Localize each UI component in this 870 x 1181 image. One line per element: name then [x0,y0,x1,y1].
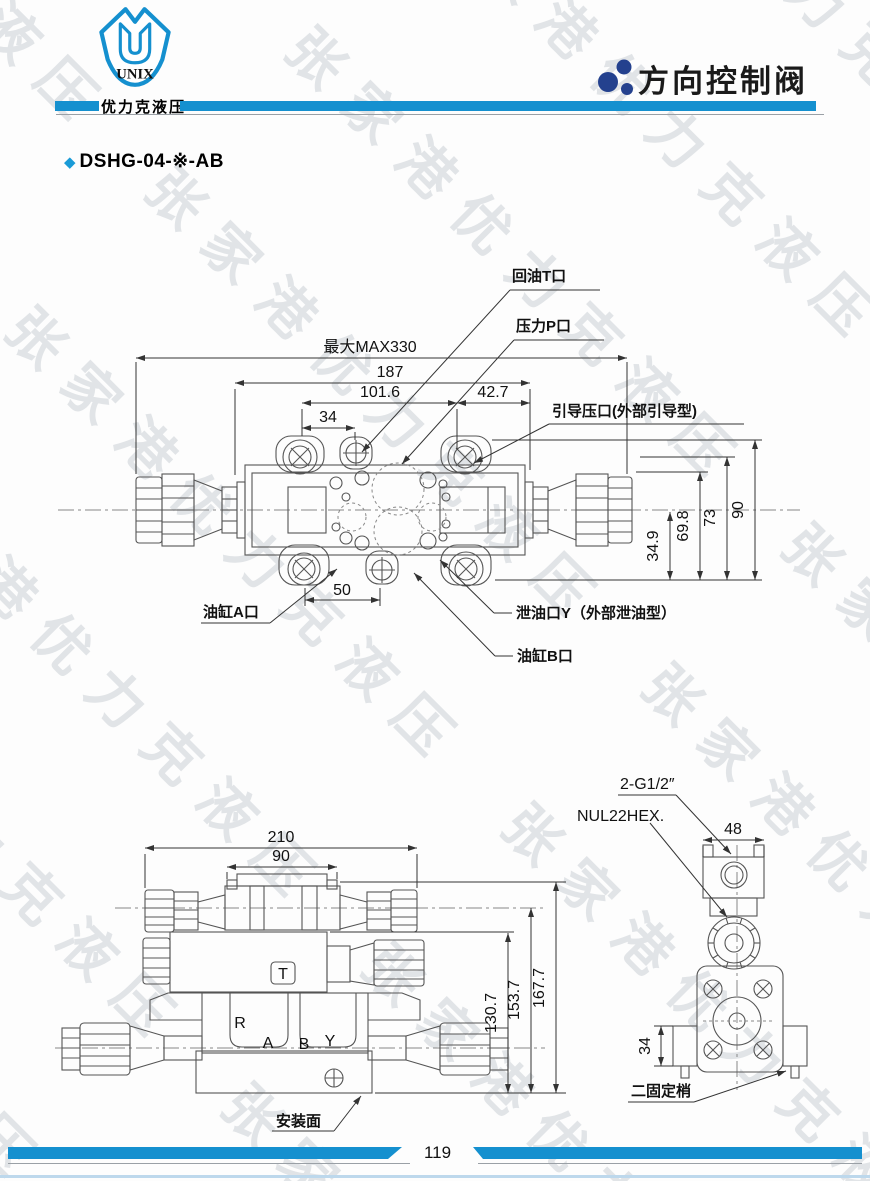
port-letter-b: B [299,1036,310,1053]
side-and-end-view-drawing: 210 90 130.7 153.7 167.7 T R A B Y 安装面 [0,760,870,1140]
end-view-body [673,845,807,1078]
dim-50: 50 [333,582,351,599]
dim-187: 187 [377,364,404,381]
dim-max330: 最大MAX330 [323,338,416,356]
label-hex-nut: NUL22HEX. [577,808,664,825]
dim-69-8: 69.8 [675,510,692,541]
model-code: DSHG-04-※-AB [80,150,224,173]
footer-bar-right [473,1147,862,1159]
page-category-title: 方向控制阀 [638,56,808,101]
hidden-detail-circles [338,463,446,555]
model-title: ◆ DSHG-04-※-AB [64,150,224,173]
label-thread-size: 2-G1/2″ [620,776,675,793]
leader-lines-end [618,795,786,1102]
dim-210: 210 [268,829,295,846]
catalog-page: 张家港优力克液压 张家港优力克液压 张家港优力克液压 张家港优力克液压 张家港优… [0,0,870,1181]
page-bottom-edge [0,1175,870,1178]
top-view-drawing: 最大MAX330 187 101.6 42.7 34 50 34.9 69.8 … [0,240,870,680]
port-letter-r: R [234,1015,246,1032]
port-letter-a: A [263,1035,274,1052]
brand-dots-icon [596,54,636,98]
dim-167-7: 167.7 [531,968,548,1008]
logo-text: UNIX [116,67,154,83]
label-drain-port-y: 泄油口Y（外部泄油型） [516,604,676,622]
right-solenoid [525,474,632,546]
footer-bar-left [8,1147,402,1159]
pilot-stage-body [143,932,424,992]
label-return-port-t: 回油T口 [512,267,566,285]
main-valve-side [62,993,508,1093]
label-cylinder-port-b: 油缸B口 [517,647,573,665]
dim-90-side: 90 [272,848,290,865]
label-cylinder-port-a: 油缸A口 [203,603,259,621]
port-letter-t: T [278,966,288,983]
dim-130-7: 130.7 [483,993,500,1033]
page-number: 119 [402,1143,473,1163]
dim-42-7: 42.7 [477,384,508,401]
dim-101-6: 101.6 [360,384,400,401]
dim-34-end: 34 [637,1037,654,1055]
label-pilot-port: 引导压口(外部引导型) [552,402,697,420]
footer-hairline-right [478,1163,862,1164]
brand-bar-right [180,101,816,111]
dim-34: 34 [319,409,337,426]
dim-90: 90 [730,501,747,519]
dim-73: 73 [702,509,719,527]
dimension-lines-side [145,848,566,1093]
pilot-valve-side [145,874,417,932]
port-letter-y: Y [325,1033,336,1050]
label-pressure-port-p: 压力P口 [516,317,571,335]
brand-bar-left [55,101,99,111]
footer-hairline-left [8,1163,410,1164]
label-fixing-pins: 二固定梢 [631,1082,691,1100]
header-hairline [56,114,824,115]
left-solenoid [136,474,245,546]
label-mounting-surface: 安装面 [276,1112,321,1130]
dim-48: 48 [724,821,742,838]
diamond-bullet-icon: ◆ [64,153,76,171]
dim-34-9: 34.9 [645,530,662,561]
unix-logo: UNIX [93,5,177,89]
dim-153-7: 153.7 [506,980,523,1020]
